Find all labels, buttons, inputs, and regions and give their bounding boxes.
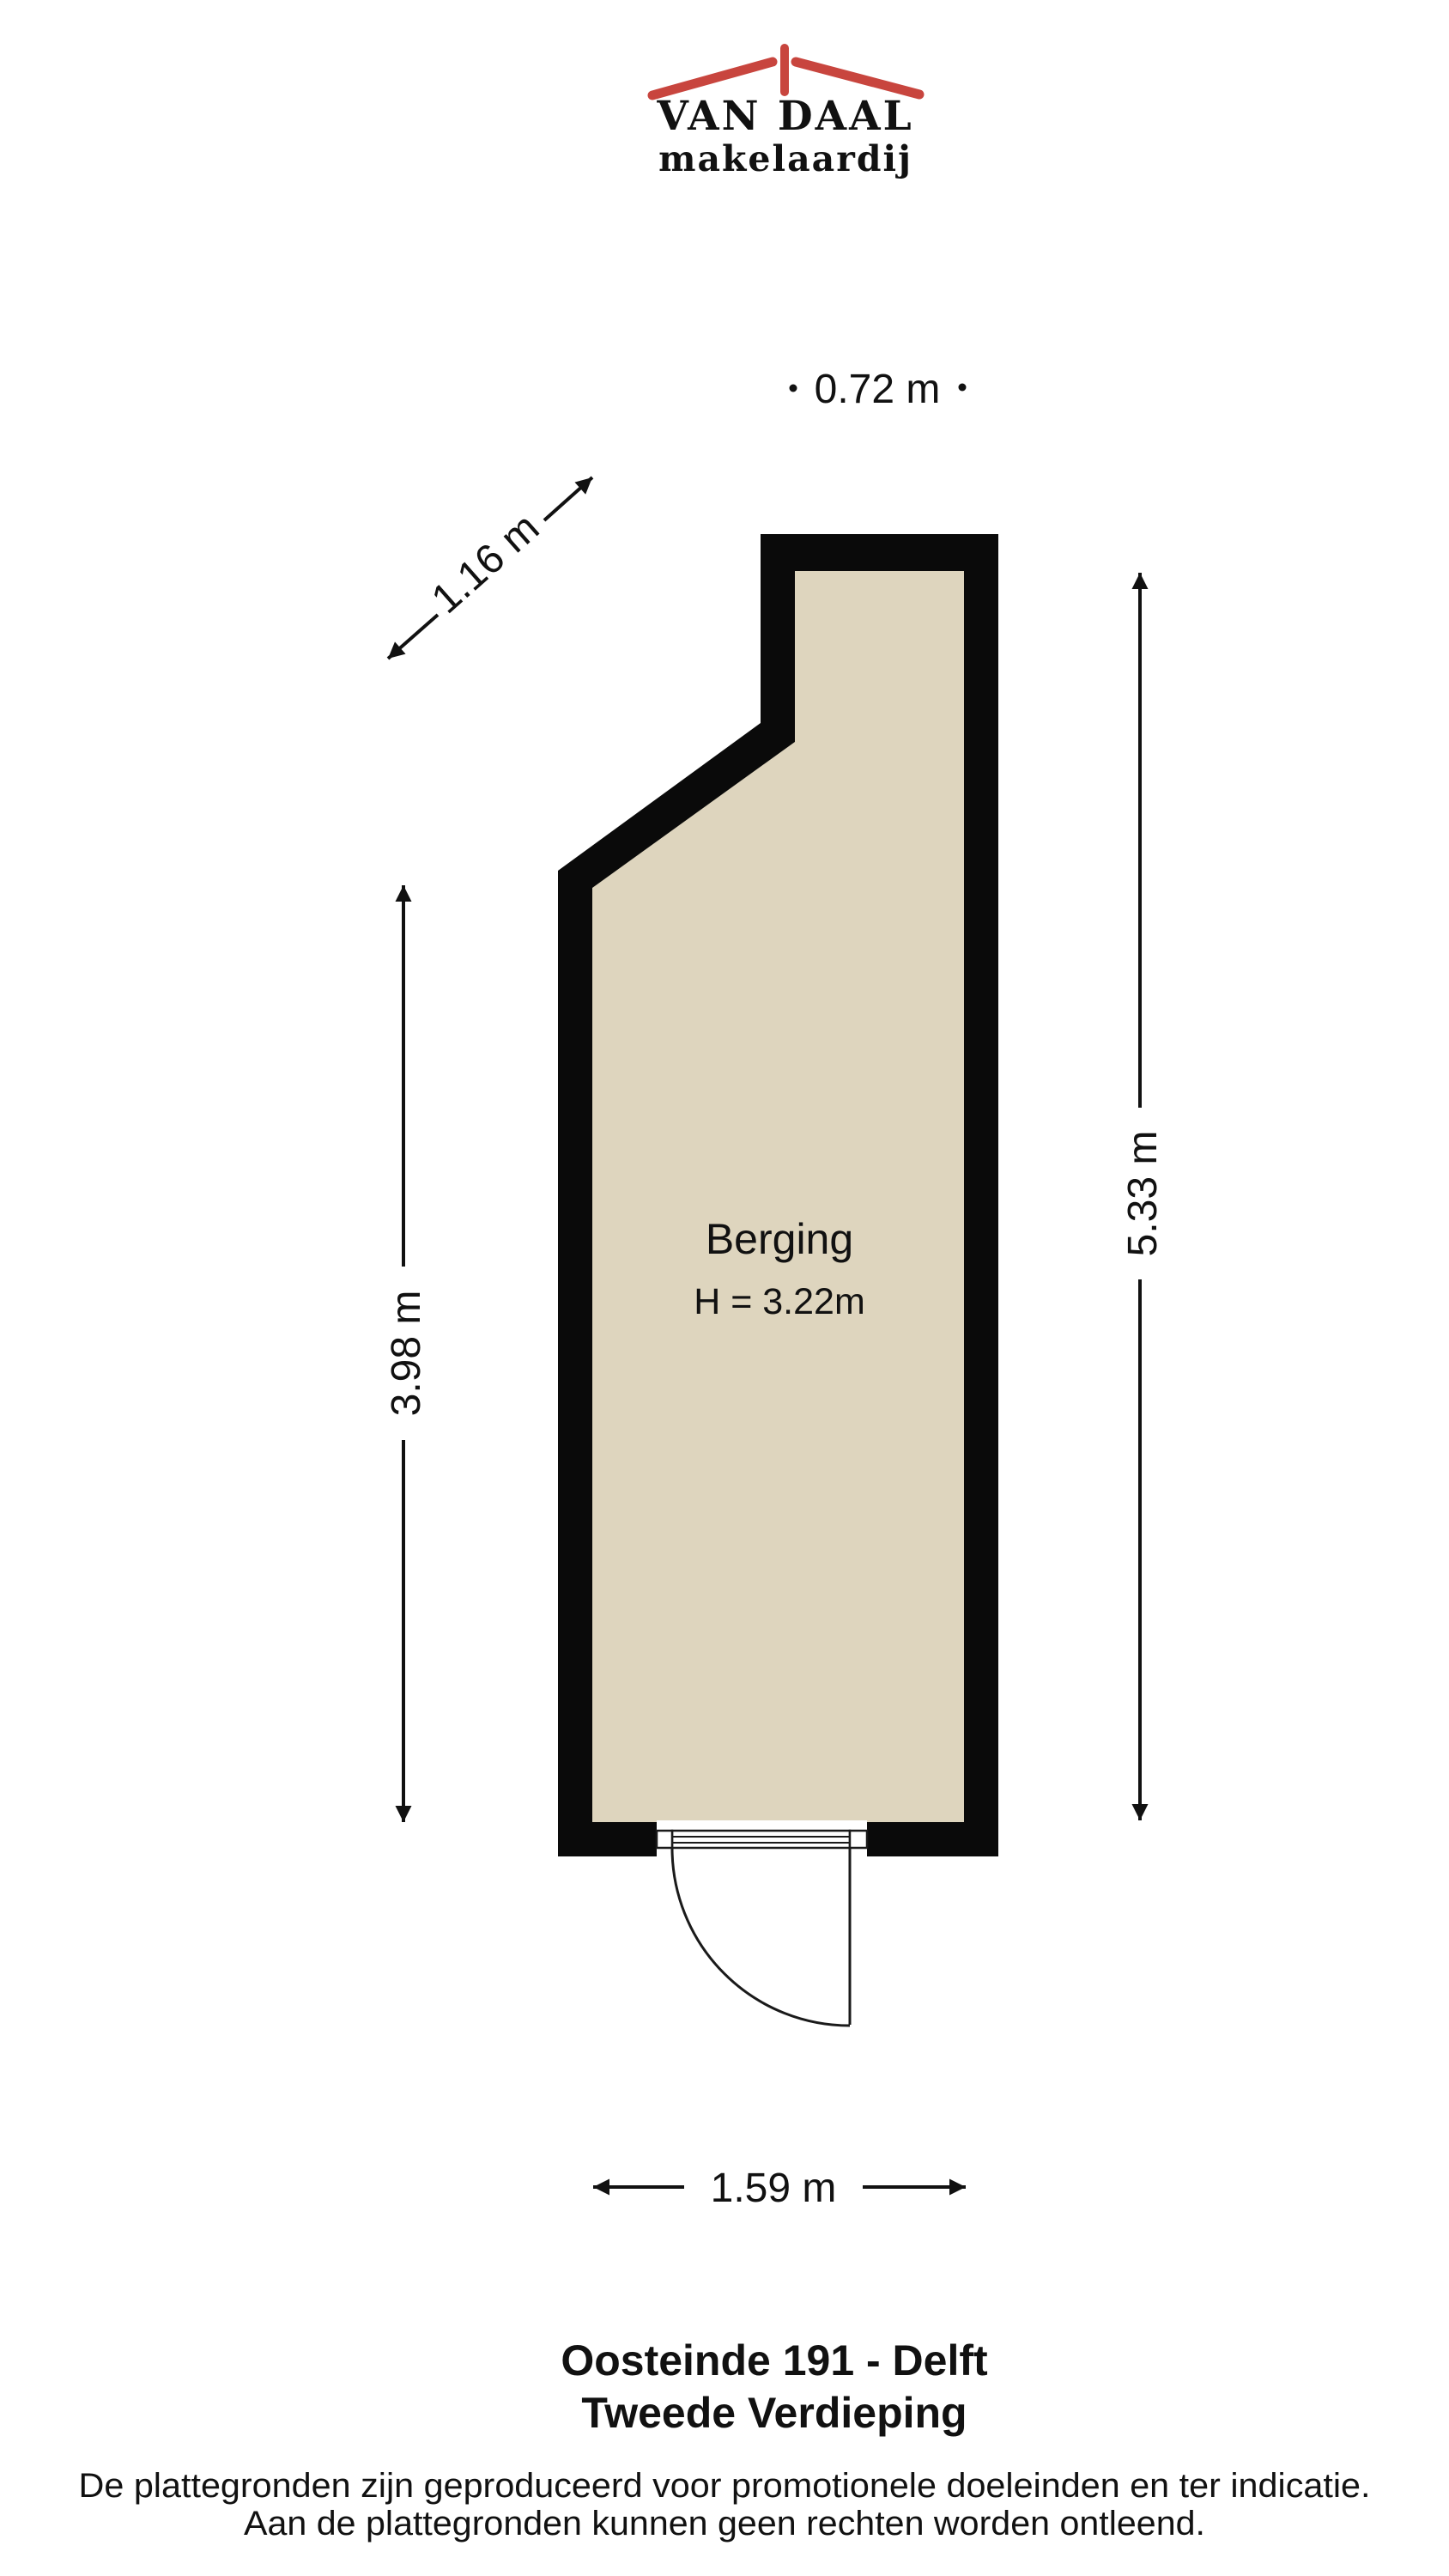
dimension-top-width: 0.72 m [790,367,967,412]
plan-title-floor: Tweede Verdieping [581,2389,967,2437]
room-name-label: Berging [706,1215,853,1263]
agency-logo: VAN DAAL makelaardij [652,48,919,179]
dimension-left-height: 3.98 m [384,885,429,1822]
dimension-arrow-segment [388,615,438,659]
door-jamb-left [657,1831,672,1848]
dimension-tick [790,385,797,392]
dimension-bottom-width: 1.59 m [593,2166,966,2211]
door-swing-arc [672,1848,850,2026]
door-jamb-right [850,1831,867,1848]
logo-roof-icon [652,48,919,95]
dimension-right-height-label: 5.33 m [1120,1131,1166,1257]
dimension-top-width-label: 0.72 m [815,367,941,412]
dimension-bottom-width-label: 1.59 m [711,2166,837,2211]
plan-title-address: Oosteinde 191 - Delft [561,2336,988,2385]
floorplan-room-berging: Berging H = 3.22m [558,534,998,2026]
door [657,1820,867,2026]
disclaimer-line-2: Aan de plattegronden kunnen geen rechten… [244,2505,1205,2543]
dimension-tick [959,384,967,392]
dimension-diagonal-label: 1.16 m [423,505,548,623]
door-sill [672,1831,850,1848]
dimension-left-height-label: 3.98 m [384,1291,429,1417]
dimension-diagonal: 1.16 m [388,477,592,659]
logo-sub-text: makelaardij [658,138,912,179]
disclaimer-line-1: De plattegronden zijn geproduceerd voor … [79,2467,1371,2505]
dimension-right-height: 5.33 m [1120,573,1166,1820]
room-floor [592,571,964,1822]
logo-name-text: VAN DAAL [656,93,913,140]
room-ceiling-height-label: H = 3.22m [694,1281,865,1322]
disclaimer: De plattegronden zijn geproduceerd voor … [79,2467,1371,2543]
dimension-arrow-segment [544,477,592,520]
floorplan-canvas: VAN DAAL makelaardij Berging H = 3.22m [0,0,1449,2576]
plan-title: Oosteinde 191 - Delft Tweede Verdieping [561,2336,988,2437]
floorplan-page: { "logo": { "name_line": "VAN DAAL", "su… [0,0,1449,2576]
